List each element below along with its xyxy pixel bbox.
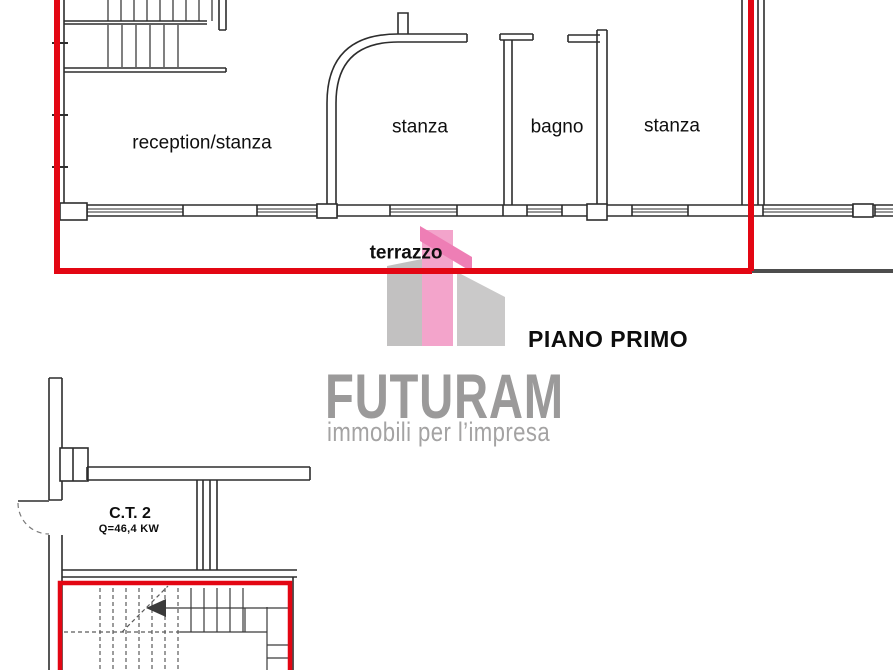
room-label-reception: reception/stanza (132, 134, 271, 153)
upper-staircase (64, 0, 226, 72)
logo-tagline: immobili per l’impresa (327, 417, 550, 448)
curved-wall (327, 13, 467, 205)
boiler-power-label: Q=46,4 KW (99, 523, 159, 535)
staircase-red-outline (60, 583, 290, 670)
floor-plan-page: reception/stanza stanza bagno stanza ter… (0, 0, 893, 670)
bagno-left-wall (500, 34, 533, 205)
stair-direction-arrow-icon (146, 599, 166, 617)
plan-linework (0, 0, 893, 670)
floor-title: PIANO PRIMO (528, 326, 688, 353)
boiler-room-label: C.T. 2 (109, 505, 151, 523)
lower-staircase (64, 586, 290, 670)
room-label-stanza-2: stanza (644, 117, 700, 136)
room-label-stanza-1: stanza (392, 118, 448, 137)
room-label-bagno: bagno (531, 118, 584, 137)
facade-wall (57, 203, 893, 220)
upper-floor-plan-drawing (52, 0, 893, 220)
terrace-label: terrazzo (370, 244, 443, 263)
